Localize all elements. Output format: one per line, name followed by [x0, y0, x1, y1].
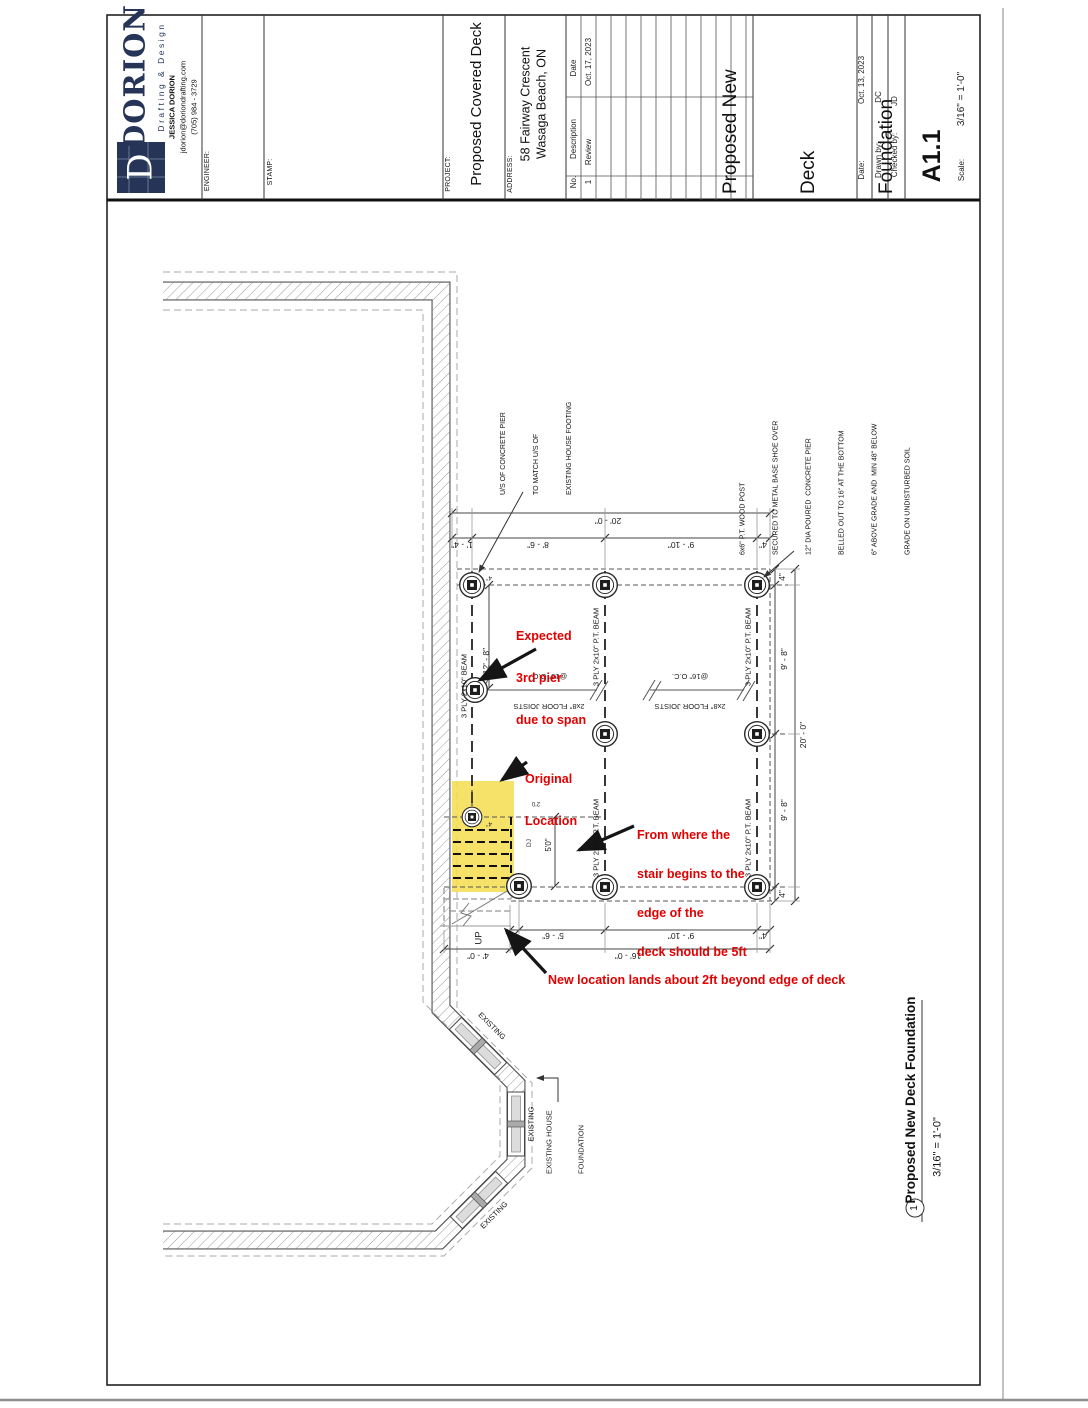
dim-bottom-seg2: 5' - 6": [542, 931, 564, 941]
dim-beam-left: 12' - 8": [481, 648, 491, 674]
existing-windows: [449, 1017, 524, 1228]
post-note: 6x6" P.T. WOOD POST SECURED TO METAL BAS…: [716, 423, 925, 555]
brand-tagline: Drafting & Design: [156, 22, 166, 131]
drawn-by-label: Drawn by:: [874, 142, 884, 178]
brand-contact-name: JESSICA DORION: [168, 75, 177, 139]
drawn-by-value: DC: [874, 91, 884, 103]
dim-top-seg1: 1' - 4": [451, 540, 473, 550]
existing-foundation-line2: FOUNDATION: [576, 1104, 587, 1174]
logo-letter: D: [121, 153, 162, 180]
sheet-title-line2: Deck: [796, 26, 822, 194]
checked-by-value: JD: [890, 96, 900, 106]
joist-label-right-bay: 2x8" FLOOR JOISTS @16" O.C.: [654, 661, 725, 731]
joist-label-line1: 2x8" FLOOR JOISTS: [654, 701, 725, 711]
pier-note-line3: EXISTING HOUSE FOOTING: [564, 399, 575, 495]
annotation-line: due to span: [516, 713, 586, 727]
pier-note: U/S OF CONCRETE PIER TO MATCH U/S OF EXI…: [476, 399, 586, 495]
post-note-line3: 12" DIA POURED CONCRETE PIER: [804, 423, 815, 555]
checked-by-label: Checked by:: [890, 133, 900, 177]
up-label: UP: [473, 931, 484, 944]
existing-house-wall: [163, 291, 516, 1240]
annotation-original-location: Original Location: [525, 744, 577, 842]
rev-row-no: 1: [584, 180, 594, 184]
viewport-scale: 3/16" = 1'-0": [931, 1117, 944, 1177]
dim-right-seg4: 4": [777, 890, 787, 898]
joist-label-line2: @16" O.C.: [654, 671, 725, 681]
existing-foundation-label: EXISTING HOUSE FOUNDATION: [523, 1104, 597, 1174]
post-note-line5: 6" ABOVE GRADE AND MIN 48" BELOW: [870, 423, 881, 555]
dim-pier-offset-top: 4": [486, 573, 492, 581]
annotation-line: stair begins to the: [637, 868, 747, 881]
beam-label-mid-upper: 3 PLY 2x10" P.T. BEAM: [592, 608, 601, 686]
break-symbol: [461, 903, 471, 926]
dim-top-seg4: 4": [759, 540, 767, 550]
rev-row-date: Oct. 17, 2023: [584, 38, 594, 86]
dim-top-seg2: 8' - 6": [527, 540, 549, 550]
viewport-number: 1: [909, 1205, 921, 1211]
dim-bottom-seg4: 4": [759, 931, 767, 941]
viewport-title: Proposed New Deck Foundation: [903, 996, 919, 1203]
dim-pier-offset-stair: 4": [486, 819, 492, 827]
post-note-line1: 6x6" P.T. WOOD POST: [738, 423, 749, 555]
post-note-line4: BELLED OUT TO 16" AT THE BOTTOM: [837, 423, 848, 555]
drawing-sheet: DORION Drafting & Design JESSICA DORION …: [0, 0, 1088, 1408]
stamp-label: STAMP:: [267, 159, 275, 186]
rev-row-description: Review: [584, 139, 594, 165]
annotation-line: Expected: [516, 629, 586, 643]
highlight-original-stair: [452, 781, 514, 892]
annotation-expected-pier: Expected 3rd pier due to span: [516, 601, 586, 741]
dim-bottom-stair: 4' - 0": [467, 951, 489, 961]
dim-right-overall: 20' - 0": [798, 722, 808, 748]
annotation-new-location: New location lands about 2ft beyond edge…: [548, 973, 845, 987]
post-note-line6: GRADE ON UNDISTURBED SOIL: [903, 423, 914, 555]
stair-new-location: [440, 888, 512, 927]
beam-label-right-upper: 3 PLY 2x10" P.T. BEAM: [744, 608, 753, 686]
rev-no-header: No.: [569, 176, 579, 188]
sheet-title-line1: Proposed New: [718, 26, 744, 194]
post-note-line2: SECURED TO METAL BASE SHOE OVER: [771, 423, 782, 555]
annotation-line: 3rd pier: [516, 671, 586, 685]
address-line2: Wasaga Beach, ON: [535, 49, 550, 159]
rev-description-header: Description: [569, 119, 579, 159]
annotation-line: deck should be 5ft: [637, 946, 747, 959]
annotation-line: edge of the: [637, 907, 747, 920]
brand-name: DORION: [118, 4, 153, 150]
existing-foundation-line1: EXISTING HOUSE: [544, 1104, 555, 1174]
dim-right-seg1: 4": [777, 573, 787, 581]
brand-email: jdorion@doriondrafting.com: [179, 61, 188, 153]
project-label: PROJECT:: [445, 156, 453, 191]
date-label: Date:: [857, 160, 867, 179]
address-label: ADDRESS:: [507, 155, 515, 192]
annotation-line: Location: [525, 814, 577, 828]
rev-date-header: Date: [569, 60, 579, 77]
dim-top-overall: 20' - 0": [595, 516, 621, 526]
project-name: Proposed Covered Deck: [468, 22, 486, 185]
beam-label-left: 3 PLY 2x10" BEAM: [460, 654, 469, 718]
engineer-label: ENGINEER:: [204, 151, 212, 191]
dim-right-seg2: 9' - 8": [779, 648, 789, 670]
dim-right-seg3: 9' - 8": [779, 799, 789, 821]
sheet-number: A1.1: [917, 130, 947, 183]
dim-bottom-seg1: 4": [511, 931, 519, 941]
date-value: Oct. 13, 2023: [857, 56, 867, 104]
sheet-title: Proposed New Deck Foundation: [666, 26, 926, 194]
annotation-line: Original: [525, 772, 577, 786]
dim-top-seg3: 9' - 10": [668, 540, 694, 550]
beam-label-mid-lower: 3 PLY 2x10" P.T. BEAM: [592, 799, 601, 877]
annotation-stair-distance: From where the stair begins to the edge …: [637, 803, 747, 972]
address-line1: 58 Fairway Crescent: [519, 47, 534, 162]
scale-value: 3/16" = 1'-0": [956, 72, 968, 126]
scale-label: Scale:: [957, 159, 967, 181]
pier-note-line2: TO MATCH U/S OF: [531, 399, 542, 495]
pier-note-line1: U/S OF CONCRETE PIER: [498, 399, 509, 495]
brand-phone: (705) 984 - 3729: [190, 79, 199, 134]
annotation-line: From where the: [637, 829, 747, 842]
